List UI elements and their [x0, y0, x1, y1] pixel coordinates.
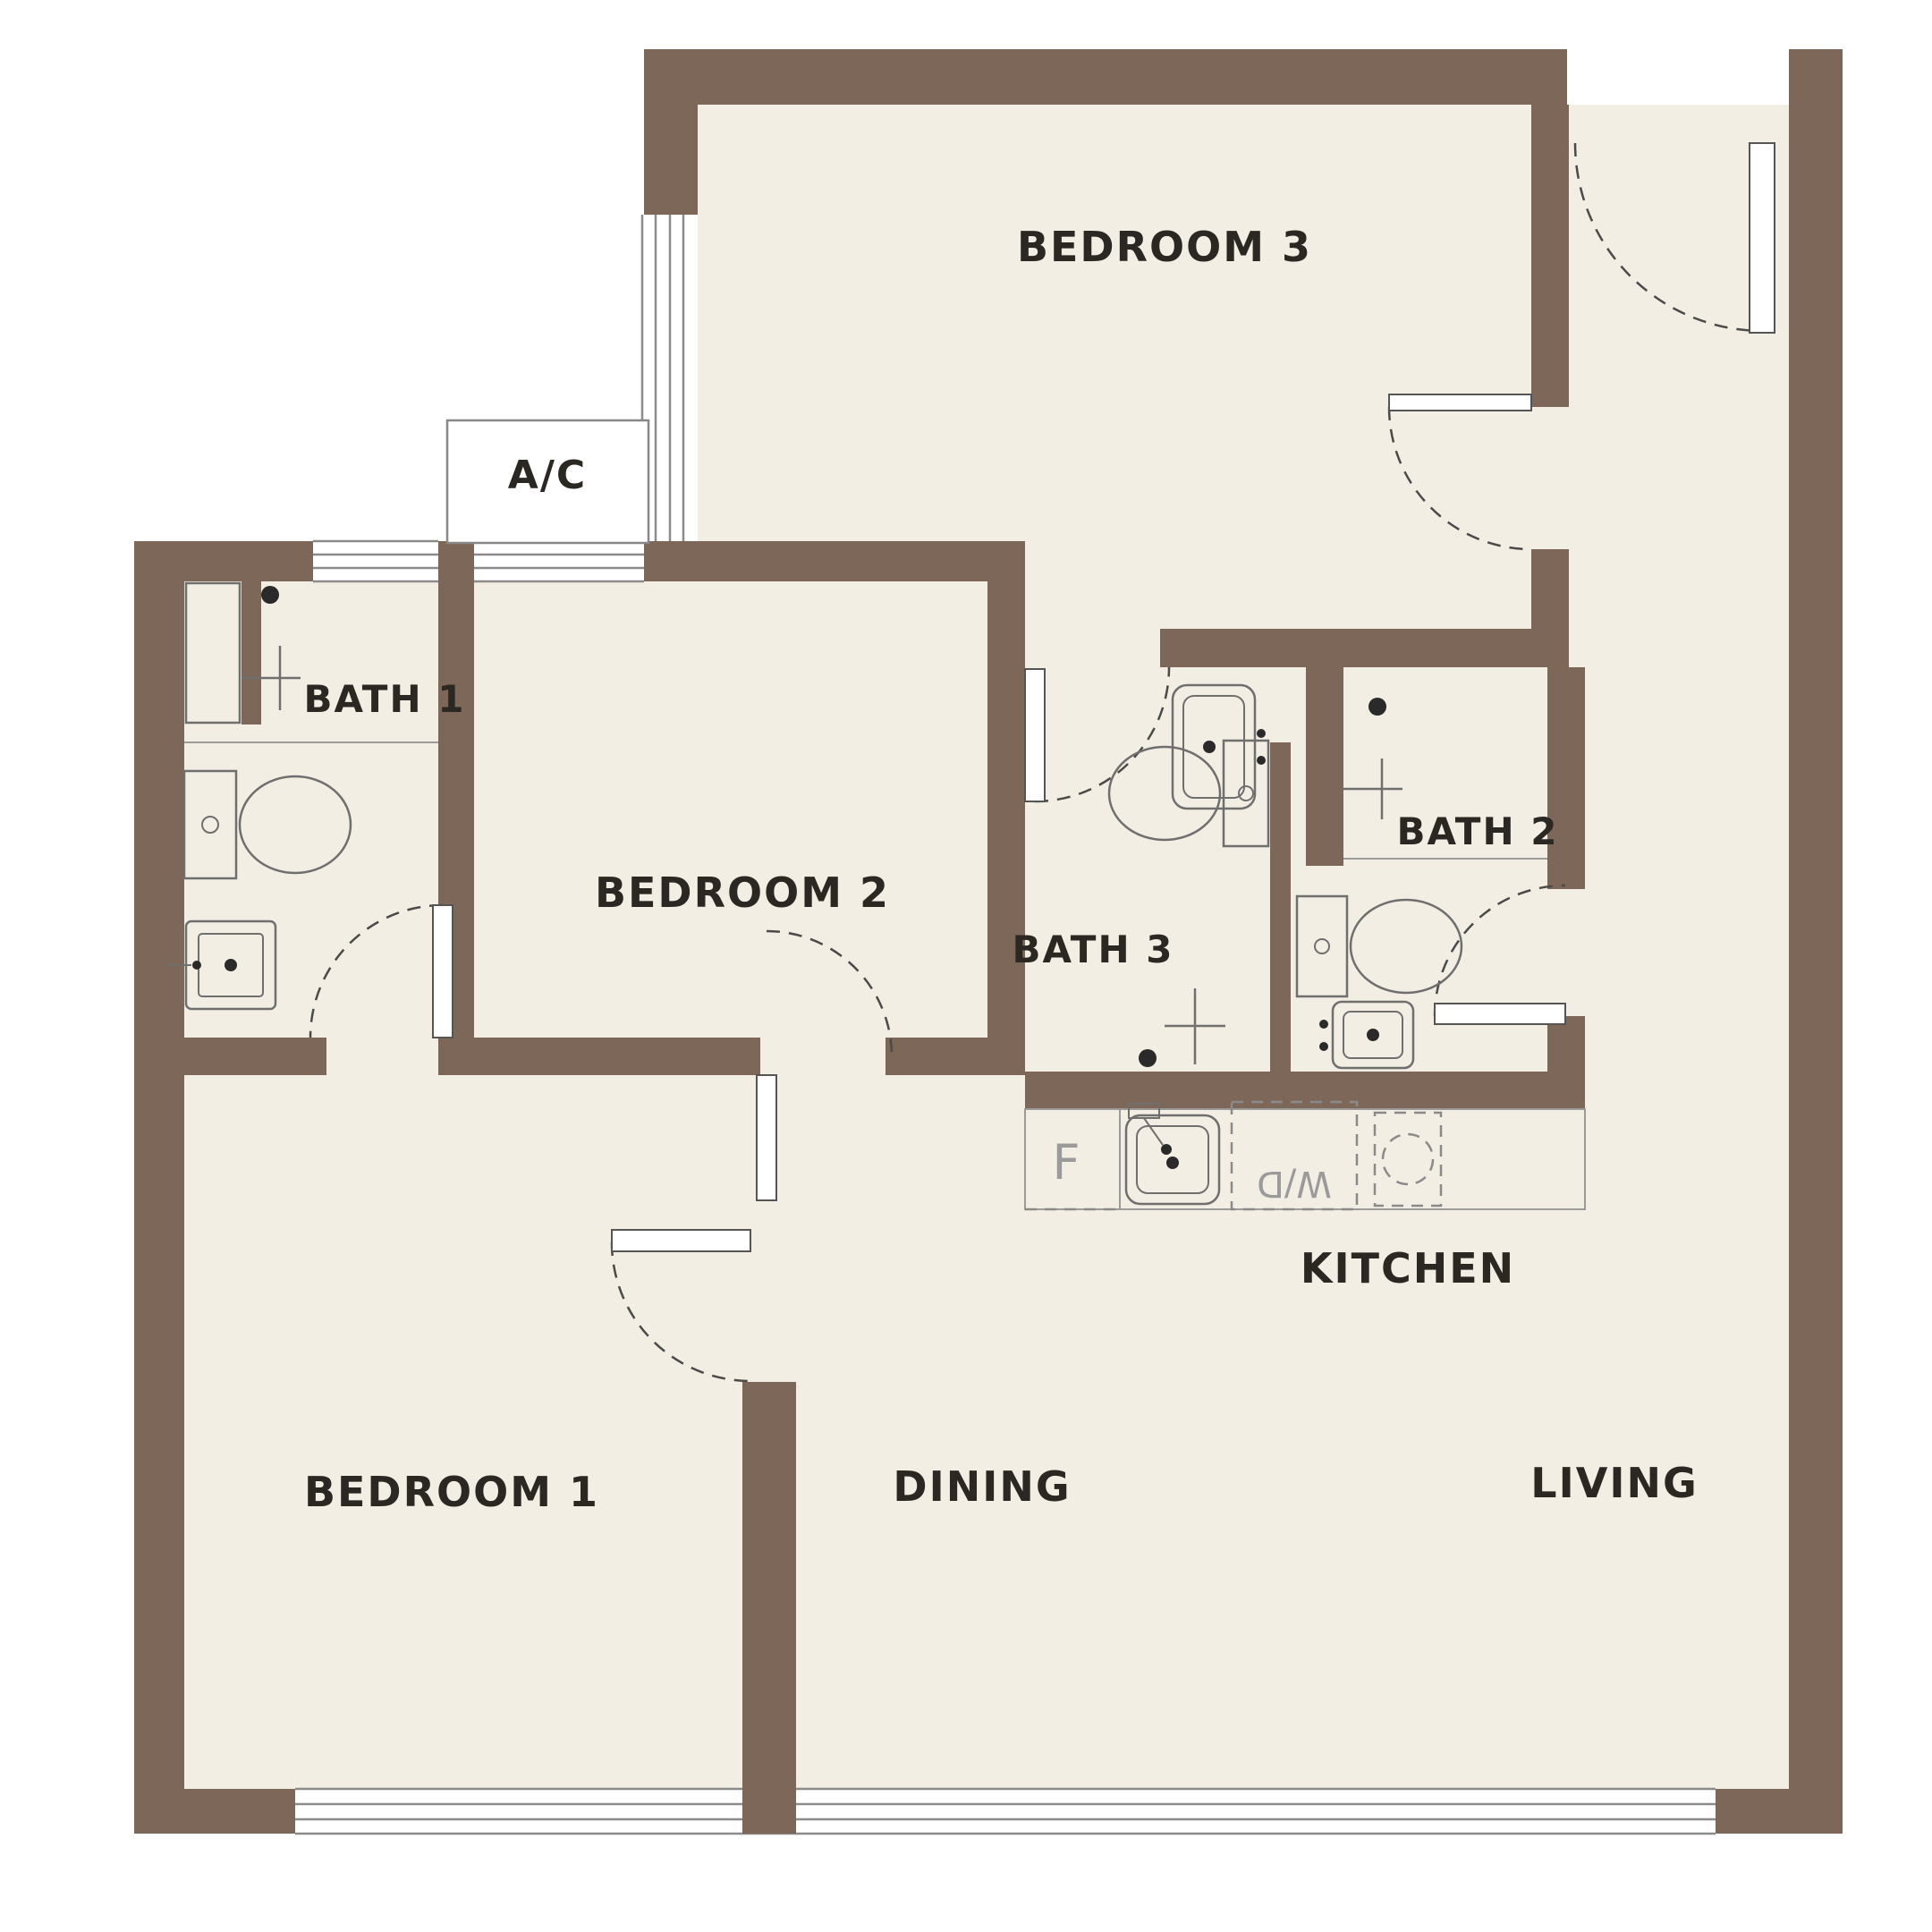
- wall-segment: [134, 541, 313, 581]
- shower-drain-icon: [1368, 698, 1386, 716]
- bath1-label: BATH 1: [304, 677, 466, 721]
- ac-label: A/C: [508, 453, 587, 498]
- bath2-label: BATH 2: [1397, 809, 1559, 853]
- shower-drain-icon: [261, 586, 279, 604]
- kitchen-label: KITCHEN: [1301, 1244, 1515, 1292]
- wall-segment: [1025, 1072, 1585, 1109]
- shower-drain-icon: [1139, 1049, 1157, 1067]
- door-leaf: [1435, 1004, 1565, 1024]
- wall-segment: [698, 541, 987, 581]
- door-leaf: [1389, 394, 1531, 411]
- living-label: LIVING: [1530, 1459, 1698, 1507]
- wall-segment: [438, 541, 474, 581]
- wall-segment: [644, 49, 698, 215]
- wall-segment: [1547, 667, 1585, 889]
- wall-segment: [1789, 49, 1843, 1834]
- wall-segment: [1716, 1789, 1843, 1834]
- wall-segment: [885, 1038, 1025, 1075]
- bedroom2-label: BEDROOM 2: [595, 869, 890, 917]
- wall-segment: [1306, 667, 1343, 866]
- wall-segment: [1160, 629, 1569, 667]
- floor-plan: BEDROOM 3 A/C BATH 1 BEDROOM 2 BATH 2 BA…: [0, 0, 1932, 1932]
- wall-segment: [438, 1038, 760, 1075]
- bedroom1-label: BEDROOM 1: [304, 1468, 599, 1516]
- window-bath1-top: [313, 541, 438, 581]
- window-bottom: [295, 1789, 1716, 1834]
- wall-segment: [1531, 105, 1569, 407]
- wall-segment: [644, 541, 698, 581]
- door-leaf: [433, 905, 453, 1038]
- wall-segment: [134, 1038, 326, 1075]
- floor-plan-canvas: BEDROOM 3 A/C BATH 1 BEDROOM 2 BATH 2 BA…: [0, 0, 1932, 1932]
- wall-segment: [644, 49, 1567, 105]
- door-leaf: [757, 1075, 776, 1200]
- wall-segment: [742, 1382, 796, 1834]
- bath3-label: BATH 3: [1013, 928, 1174, 971]
- door-leaf: [1025, 669, 1045, 801]
- wall-segment: [987, 541, 1025, 1075]
- wall-segment: [241, 581, 261, 724]
- wall-segment: [1270, 742, 1291, 1072]
- dining-label: DINING: [893, 1462, 1071, 1511]
- window-bedroom2-top: [474, 541, 644, 581]
- door-leaf: [1750, 143, 1775, 333]
- wall-segment: [134, 541, 184, 1834]
- washer-dryer-label: W/D: [1257, 1163, 1332, 1204]
- door-leaf: [612, 1230, 750, 1251]
- bedroom3-label: BEDROOM 3: [1017, 223, 1312, 271]
- wall-segment: [134, 1789, 295, 1834]
- fridge-label: F: [1052, 1134, 1080, 1191]
